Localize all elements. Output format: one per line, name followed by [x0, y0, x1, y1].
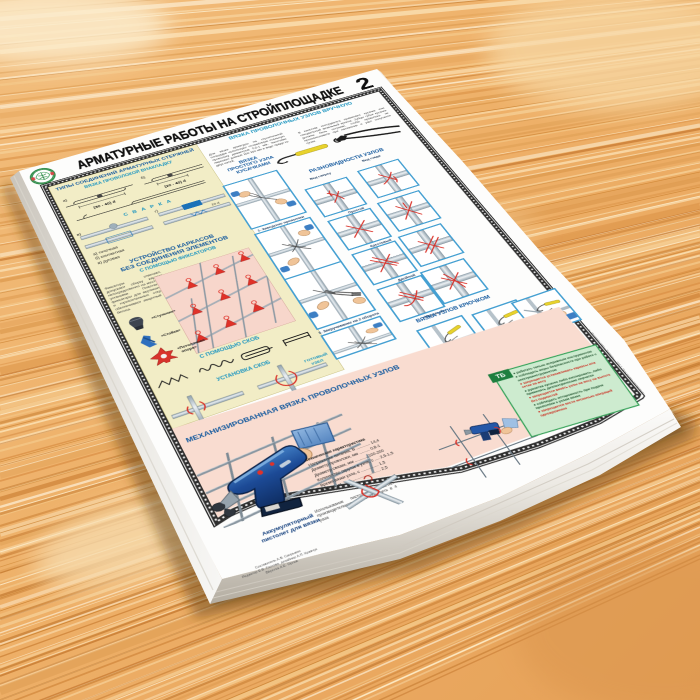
svg-text:а): а): [62, 198, 69, 203]
svg-text:«Стульчик»: «Стульчик»: [150, 309, 176, 320]
svg-text:«Стойка»: «Стойка»: [160, 328, 182, 338]
svg-text:(30 - 40) d: (30 - 40) d: [92, 199, 117, 209]
svg-text:(20 - 40) d: (20 - 40) d: [163, 178, 187, 188]
svg-text:б): б): [140, 175, 147, 180]
svg-text:в): в): [76, 231, 83, 236]
svg-text:г): г): [153, 208, 159, 213]
